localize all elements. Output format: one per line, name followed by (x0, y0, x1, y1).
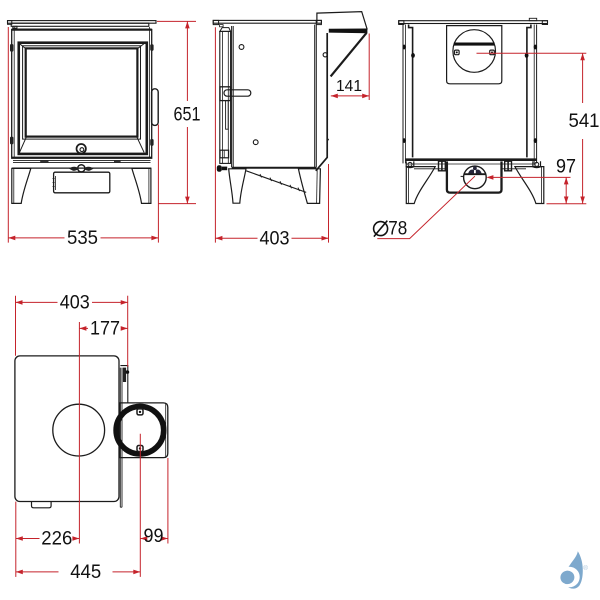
svg-text:®: ® (583, 565, 588, 572)
svg-text:141: 141 (336, 78, 362, 95)
svg-text:78: 78 (388, 218, 407, 240)
svg-text:651: 651 (174, 103, 201, 125)
svg-text:535: 535 (67, 227, 98, 249)
svg-text:541: 541 (569, 110, 600, 132)
svg-text:445: 445 (70, 561, 101, 583)
svg-text:99: 99 (144, 525, 164, 547)
svg-text:403: 403 (260, 227, 290, 249)
svg-text:97: 97 (556, 156, 576, 178)
svg-text:403: 403 (60, 292, 90, 314)
svg-text:177: 177 (90, 318, 120, 340)
svg-text:226: 226 (41, 528, 72, 550)
